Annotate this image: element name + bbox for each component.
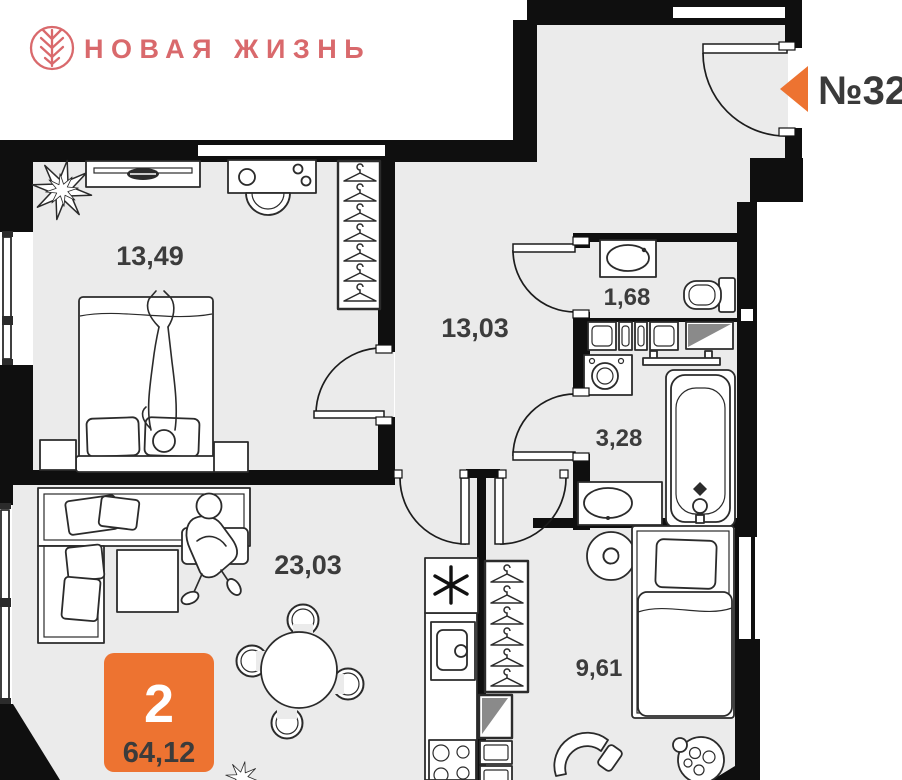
room-label-bedroom2: 9,61 (576, 655, 623, 682)
single-bed-icon (632, 526, 734, 718)
toilet-icon (684, 278, 735, 312)
brand-logo: НОВАЯ ЖИЗНЬ (31, 27, 371, 69)
double-bed-icon (76, 297, 216, 472)
bathtub-icon (666, 370, 735, 527)
shaft-notch (741, 309, 753, 321)
total-area: 64,12 (123, 737, 196, 769)
window-bedroom1 (0, 231, 33, 365)
pillow-icon (61, 577, 101, 622)
window-bedroom2 (735, 537, 755, 639)
kitchen-sink-icon (431, 622, 475, 680)
wall-slot (198, 145, 385, 156)
laundry-niche (588, 322, 733, 350)
room-label-hallway: 13,03 (441, 313, 509, 343)
floor-plan-canvas: 13,49 (0, 0, 902, 780)
room-label-living: 23,03 (274, 550, 342, 580)
floor-plan-page: 13,49 (0, 0, 902, 780)
apartment-marker: №32 (780, 66, 902, 113)
washing-machine-icon (584, 355, 632, 395)
wall-slot (673, 7, 785, 18)
desk-icon (228, 160, 316, 193)
bath-sink-icon (578, 482, 662, 525)
room-label-wc: 1,68 (604, 284, 651, 311)
stove-icon (429, 740, 476, 780)
room-hallway: 13,03 (441, 313, 509, 343)
room-label-bathroom: 3,28 (596, 425, 643, 452)
coffee-table-icon (117, 550, 178, 612)
room-label-bedroom1: 13,49 (116, 241, 184, 271)
apartment-number: №32 (818, 69, 902, 113)
pillow-icon (65, 544, 104, 582)
logo-text: НОВАЯ ЖИЗНЬ (84, 34, 371, 64)
pillow-icon (98, 496, 139, 530)
logo-icon (31, 27, 73, 69)
kitchen-block (425, 558, 478, 780)
wc-sink-icon (600, 240, 656, 277)
rooms-count: 2 (144, 674, 174, 734)
dresser-icon (86, 161, 200, 187)
area-badge: 2 64,12 (104, 653, 214, 772)
wardrobe-icon (338, 161, 380, 309)
dining-table-icon (261, 632, 337, 708)
wardrobe-icon (485, 561, 528, 692)
fridge-niche-icon (425, 558, 478, 613)
pillow-icon (655, 539, 717, 589)
window-living (0, 503, 12, 704)
shelf-unit-icon (479, 695, 512, 780)
pouf-icon (587, 532, 635, 580)
